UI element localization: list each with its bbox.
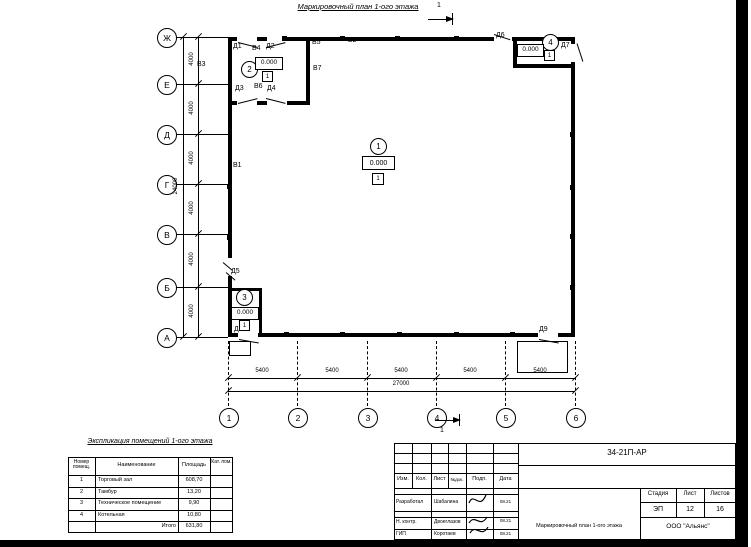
titleblock-line (518, 465, 736, 466)
wall-tick (340, 36, 345, 41)
table-cell: 2 (68, 490, 95, 496)
section-mark-top-label: 1 (434, 2, 444, 9)
mark-label: В7 (313, 65, 322, 72)
table-cell: 10,80 (178, 513, 210, 519)
titleblock-line (493, 443, 494, 540)
wall-segment (228, 37, 232, 258)
wall-tick (227, 235, 232, 240)
axis-bubble: 4 (427, 408, 447, 428)
dim-total-label: 24000 (173, 169, 179, 203)
titleblock-line (394, 453, 518, 454)
date-value: 08.21 (494, 519, 517, 524)
door-leaf (577, 43, 584, 61)
wall-segment (228, 333, 238, 337)
column-header: Площадь (178, 463, 210, 469)
wall-tick (397, 332, 402, 337)
room-number: 1 (376, 143, 380, 151)
wall-tick (454, 36, 459, 41)
axis-line (176, 337, 228, 338)
table-cell: 3 (68, 501, 95, 507)
total-value: 631,80 (178, 524, 210, 530)
wall-segment (571, 37, 575, 44)
axis-bubble: Д (157, 125, 177, 145)
titleblock-line (431, 443, 432, 540)
axis-number: 2 (296, 414, 301, 423)
titleblock-line (394, 473, 518, 474)
person-name: Шабалина (434, 500, 458, 505)
wall-tick (570, 132, 575, 137)
dim-label: 4000 (189, 245, 195, 273)
titleblock-line (640, 517, 736, 518)
table-cell: 9,90 (178, 501, 210, 507)
mark-label: Д9 (539, 326, 548, 333)
dim-total-label: 27000 (381, 381, 421, 387)
elevation-mark: 0.000 (255, 57, 283, 70)
stage-value: ЭП (640, 506, 676, 513)
door-leaf (238, 98, 258, 104)
table-cell: Тамбур (98, 490, 117, 496)
drawing-sheet: Маркировочный план 1-ого этажа 1 (0, 0, 751, 547)
axis-letter: Б (164, 284, 170, 293)
room-number-badge: 4 (542, 34, 559, 51)
column-header: Номер помещ. (68, 460, 95, 470)
mark-label: В6 (254, 83, 263, 90)
person-name: Двоеглазов (434, 520, 461, 525)
mark-label: В1 (233, 162, 242, 169)
axis-letter: В (164, 231, 170, 240)
mark-label: Д6 (496, 32, 505, 39)
table-cell: Торговый зал (98, 478, 132, 484)
wall-segment (257, 101, 267, 105)
table-cell: 13,20 (178, 490, 210, 496)
axis-bubble: 3 (358, 408, 378, 428)
mark-label: Д7 (561, 42, 570, 49)
project-code: 34-21П-АР (518, 449, 736, 457)
dimension-line (228, 378, 575, 379)
floor-type-mark: 1 (262, 71, 273, 82)
column-header: Наименование (95, 463, 178, 469)
table-cell: Техническое помещение (98, 501, 161, 507)
wall-tick (282, 36, 287, 41)
axis-extension (367, 341, 368, 406)
axis-extension (505, 341, 506, 406)
sheet-edge-bar (0, 540, 748, 547)
axis-extension (575, 341, 576, 406)
axis-number: 6 (574, 414, 579, 423)
axis-letter: Г (165, 181, 170, 190)
elevation-mark: 0.000 (231, 307, 259, 320)
dimension-line (228, 391, 575, 392)
mark-label: Д5 (231, 268, 240, 275)
column-header: Кат. пом. (210, 460, 233, 465)
mark-label: Д3 (235, 85, 244, 92)
axis-extension (297, 341, 298, 406)
axis-bubble: Ж (157, 28, 177, 48)
axis-bubble: Е (157, 75, 177, 95)
table-cell: 4 (68, 513, 95, 519)
company-name: ООО "Альянс" (640, 524, 736, 531)
sheet-edge-bar (736, 0, 748, 547)
mark-label: В4 (252, 45, 261, 52)
door-leaf (266, 98, 286, 104)
stage-label: Стадия (640, 491, 676, 497)
mark-label: В5 (312, 39, 321, 46)
sheet-number: 12 (676, 506, 704, 513)
role-label: Разработал (396, 500, 423, 505)
wall-tick (570, 185, 575, 190)
explication-title: Экспликация помещений 1-ого этажа (70, 438, 230, 445)
dim-label: 5400 (245, 368, 279, 374)
axis-bubble: 1 (219, 408, 239, 428)
titleblock-col: Изм. (394, 477, 412, 483)
axis-letter: Е (164, 81, 170, 90)
titleblock-col: №док. (448, 478, 466, 483)
table-gridline (68, 510, 233, 511)
axis-bubble: 5 (496, 408, 516, 428)
date-value: 08.21 (494, 500, 517, 505)
wall-tick (340, 332, 345, 337)
axis-letter: А (164, 334, 170, 343)
sheets-total: 16 (704, 506, 736, 513)
titleblock-col: Кол. (412, 477, 431, 483)
titleblock-line (640, 502, 736, 503)
sheet-label: Лист (676, 491, 704, 497)
room-number-badge: 1 (370, 138, 387, 155)
signature-icon (466, 489, 493, 539)
axis-number: 5 (504, 414, 509, 423)
axis-number: 3 (366, 414, 371, 423)
dim-label: 5400 (453, 368, 487, 374)
table-gridline (68, 521, 233, 522)
axis-bubble: А (157, 328, 177, 348)
floor-type-mark: 1 (239, 320, 250, 331)
table-cell: Котельная (98, 513, 125, 519)
elevation-mark: 0.000 (517, 44, 544, 57)
dim-label: 4000 (189, 297, 195, 325)
section-arrow-tick (459, 414, 460, 426)
table-gridline (68, 475, 233, 476)
porch (229, 341, 251, 356)
date-value: 08.21 (494, 532, 517, 537)
elevation-mark: 0.000 (362, 156, 395, 170)
role-label: Н. контр. (396, 520, 417, 525)
titleblock-line (394, 463, 518, 464)
sheets-label: Листов (704, 491, 736, 497)
axis-bubble: В (157, 225, 177, 245)
wall-segment (228, 101, 237, 105)
dimension-line (183, 37, 184, 337)
room-number: 3 (242, 294, 246, 302)
titleblock-line (394, 529, 518, 530)
room-number: 2 (247, 66, 251, 74)
dim-label: 5400 (315, 368, 349, 374)
wall-tick (284, 332, 289, 337)
titleblock-col: Дата (493, 477, 518, 483)
wall-tick (454, 332, 459, 337)
wall-tick (570, 234, 575, 239)
dim-label: 5400 (523, 368, 557, 374)
room-number: 4 (548, 39, 552, 47)
total-label: Итого (128, 524, 176, 530)
dim-label: 4000 (189, 194, 195, 222)
mark-label: В2 (348, 37, 357, 44)
dim-label: 4000 (189, 45, 195, 73)
mark-label: Д1 (233, 43, 242, 50)
axis-bubble: Б (157, 278, 177, 298)
titleblock-line (518, 443, 519, 540)
room-number-badge: 3 (236, 289, 253, 306)
axis-extension (436, 341, 437, 406)
wall-segment (558, 333, 575, 337)
mark-label: Д4 (267, 85, 276, 92)
axis-number: 1 (227, 414, 232, 423)
section-mark-bottom-label: 1 (437, 427, 447, 434)
table-cell: 608,70 (178, 478, 210, 484)
wall-tick (395, 36, 400, 41)
axis-letter: Ж (163, 34, 171, 43)
doc-title: Маркировочный план 1-ого этажа (520, 524, 638, 530)
titleblock-col: Лист (431, 477, 448, 483)
wall-tick (510, 332, 515, 337)
dim-label: 4000 (189, 144, 195, 172)
titleblock-col: Подп. (466, 477, 493, 483)
dim-label: 5400 (384, 368, 418, 374)
titleblock-line (394, 494, 518, 495)
section-arrow-tick (452, 13, 453, 25)
axis-bubble: 6 (566, 408, 586, 428)
floor-type-mark: 1 (544, 50, 555, 61)
dim-label: 4000 (189, 94, 195, 122)
titleblock-line (394, 488, 518, 489)
floor-type-mark: 1 (372, 173, 384, 185)
table-gridline (68, 498, 233, 499)
wall-segment (306, 37, 310, 105)
wall-segment (513, 64, 575, 68)
wall-segment (259, 288, 262, 337)
wall-tick (570, 285, 575, 290)
axis-bubble: 2 (288, 408, 308, 428)
table-cell: 1 (68, 478, 95, 484)
wall-segment (257, 37, 267, 41)
mark-label: Д2 (266, 43, 275, 50)
plan-title: Маркировочный план 1-ого этажа (270, 3, 446, 11)
wall-segment (287, 101, 310, 105)
axis-letter: Д (164, 131, 170, 140)
wall-segment (571, 62, 575, 337)
titleblock-line (394, 511, 518, 512)
role-label: ГИП (396, 532, 406, 537)
axis-extension (228, 341, 229, 406)
table-gridline (68, 487, 233, 488)
person-name: Коротаев (434, 532, 456, 537)
